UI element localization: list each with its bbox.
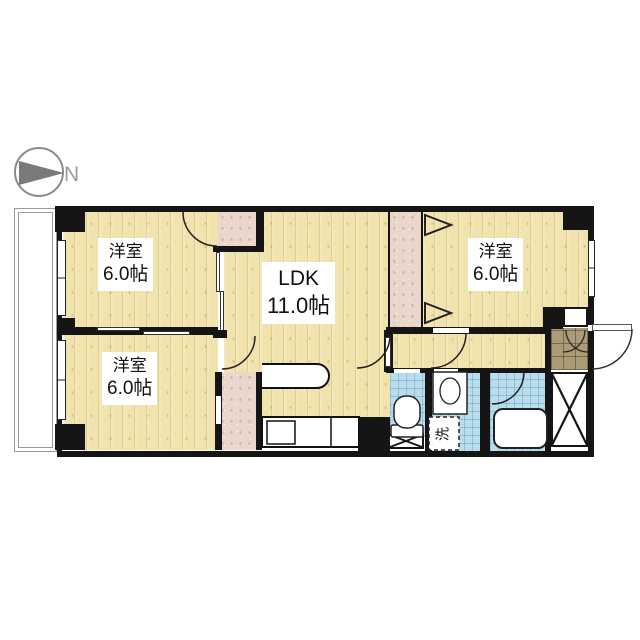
window-left-top [57, 240, 66, 316]
compass-north-label: N [64, 163, 79, 186]
room-name: 洋室 [103, 241, 148, 263]
room-size: 6.0帖 [473, 263, 518, 288]
closet-bottom-left [218, 372, 256, 450]
corner-top-left [55, 206, 85, 232]
shoe-cabinet [563, 307, 588, 327]
room-size: 6.0帖 [107, 377, 152, 402]
wall-closet1-bottom [213, 246, 264, 252]
room-size: 6.0帖 [103, 263, 148, 288]
right-room-door-gap [433, 328, 469, 333]
window-right [588, 240, 595, 297]
genkan-tile [551, 328, 588, 370]
pier-right-room-tr [563, 208, 592, 230]
closet-top-left [218, 212, 256, 250]
pipe-space [551, 372, 588, 447]
wall-top [57, 206, 594, 212]
toilet-room-floor [390, 372, 425, 437]
wall-washroom-right [480, 372, 490, 452]
balcony [14, 208, 57, 452]
wall-genkan-left [545, 328, 551, 451]
room-name: 洋室 [107, 355, 152, 377]
counter-shelf [388, 433, 424, 449]
washroom-door-gap [434, 369, 458, 373]
door-arc-entrance [592, 329, 632, 369]
compass-icon: N [15, 148, 79, 196]
entrance-door-leaf [592, 324, 632, 331]
line-closet2-left [388, 212, 390, 328]
kitchen-unit-icon [262, 417, 359, 447]
room-name: LDK [267, 265, 330, 292]
pier-right-room-br [543, 307, 563, 329]
closet3-door-gap [216, 396, 221, 424]
sliding-door-tlroom-ldk-a [216, 252, 220, 292]
toilet-door-gap [394, 369, 420, 373]
sliding-door-tlroom-ldk-b [220, 291, 224, 331]
sliding-door-left-rooms-a [97, 327, 140, 331]
sliding-door-left-rooms-b [143, 331, 190, 335]
wall-right-lower [588, 331, 594, 457]
ldk-label: LDK 11.0帖 [262, 262, 335, 324]
room-bottom-left-label: 洋室 6.0帖 [102, 352, 157, 405]
room-top-left-label: 洋室 6.0帖 [98, 238, 153, 291]
pier-kitchen-right [358, 417, 390, 451]
door-leaf-ldk-hall [385, 337, 391, 367]
floorplan-canvas: 洋室 6.0帖 LDK 11.0帖 洋室 6.0帖 洋室 6.0帖 N [0, 0, 640, 640]
pier-divider-bottom [213, 330, 227, 338]
wall-closet3-right [256, 372, 262, 450]
washroom-floor [432, 372, 480, 452]
line-closet2-right [421, 212, 423, 328]
closet-right-room [390, 212, 422, 330]
room-name: 洋室 [473, 241, 518, 263]
room-size: 11.0帖 [267, 292, 330, 321]
bathroom-floor [490, 372, 551, 452]
corner-bottom-left [55, 424, 85, 450]
window-left-bottom [57, 340, 66, 420]
room-top-right-label: 洋室 6.0帖 [468, 238, 523, 291]
wall-toilet-right [425, 372, 432, 452]
hallway-floor [386, 328, 551, 372]
wall-bottom [57, 451, 594, 457]
